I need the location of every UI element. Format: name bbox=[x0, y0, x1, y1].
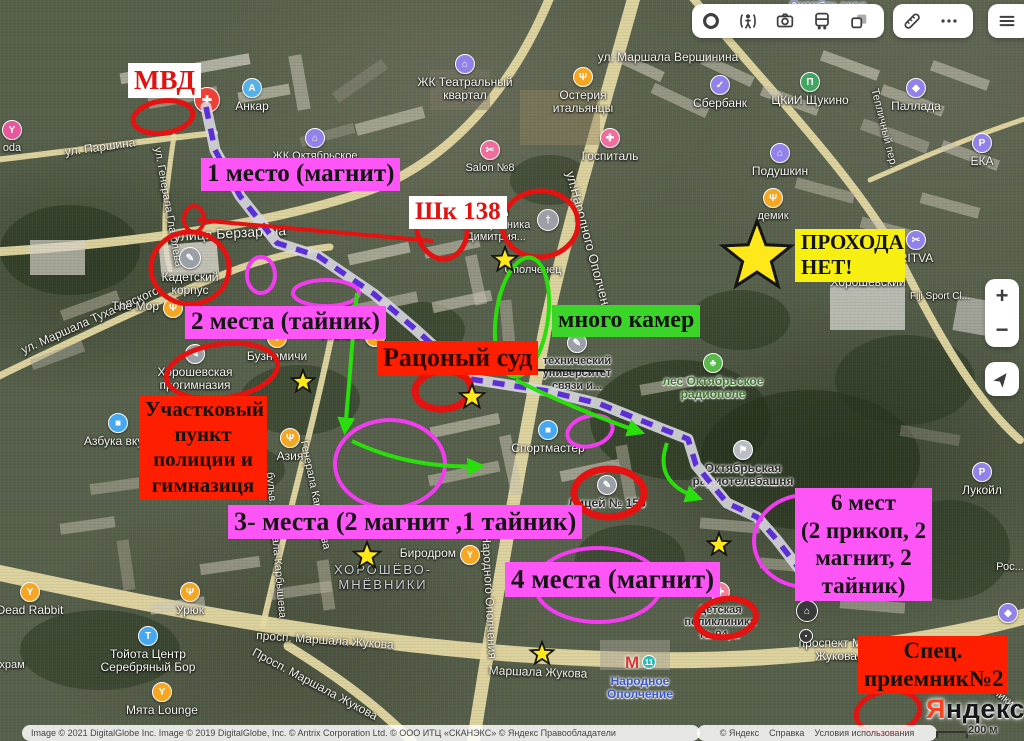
poi-label-кадетский-корпус: Кадетскийкорпус bbox=[120, 271, 260, 298]
poi-icon-лицей-156[interactable]: ✎ bbox=[597, 475, 617, 495]
metro-station-icon[interactable]: М bbox=[625, 653, 639, 673]
street-label: бульв. Генерала Карбышева bbox=[264, 472, 289, 619]
poi-label-oda: oda bbox=[0, 142, 82, 154]
poi-icon-демик[interactable]: Ψ bbox=[763, 188, 783, 208]
poi-label-рос: Рос... bbox=[935, 561, 1024, 573]
menu-icon bbox=[996, 10, 1018, 32]
toolbar-group-3 bbox=[988, 4, 1024, 38]
poi-label-лес-октябрьское-радиополе: лес Октябрьскоерадиополе bbox=[643, 375, 783, 402]
panoramas-icon bbox=[737, 10, 759, 32]
poi-label-dead-rabbit: Dead Rabbit bbox=[0, 604, 100, 617]
street-label: ул. Генерала Глаголева bbox=[152, 146, 185, 267]
poi-icon-salon-8[interactable]: ✂ bbox=[480, 140, 500, 160]
metro-line-badge: 11 bbox=[642, 655, 656, 669]
yandex-logo-rest: ндекс bbox=[946, 694, 1024, 724]
yandex-logo-ya: Я bbox=[926, 694, 946, 724]
poi-label-подушкин: Подушкин bbox=[710, 165, 850, 178]
street-label: просп. Маршала Жукова bbox=[256, 628, 394, 652]
geolocation-arrow-icon bbox=[992, 369, 1012, 389]
ruler-icon bbox=[901, 10, 923, 32]
poi-label-бузнамичи: Бузнамичи bbox=[207, 350, 347, 363]
attribution-bar: Image © 2021 DigitalGlobe Inc. Image © 2… bbox=[22, 725, 700, 741]
yandex-copyright-link[interactable]: © Яндекс bbox=[720, 728, 759, 738]
poi-label-урюк: Урюк bbox=[120, 604, 260, 617]
street-label: ул. Маршала Вершинина bbox=[598, 50, 739, 64]
annotation-banner-place3: 3- места (2 магнит ,1 тайник) bbox=[228, 505, 582, 539]
poi-icon-ека[interactable]: P bbox=[972, 133, 992, 153]
help-link[interactable]: Справка bbox=[769, 728, 804, 738]
poi-icon-азия[interactable]: Ψ bbox=[280, 428, 300, 448]
poi-icon-октябрьская-радиотелебашня[interactable]: ⚑ bbox=[733, 440, 753, 460]
poi-icon-the-мор[interactable]: Ψ bbox=[163, 298, 183, 318]
annotation-banner-shk138: Шк 138 bbox=[409, 196, 507, 229]
poi-icon-лес-октябрьское-радиополе[interactable]: ♣ bbox=[703, 353, 723, 373]
poi-icon-биродром[interactable]: Y bbox=[460, 545, 480, 565]
yandex-logo[interactable]: Яндекс bbox=[926, 694, 1024, 725]
poi-icon-жк-театральный-квартал[interactable]: ⌂ bbox=[455, 54, 475, 74]
poi-icon-жк-октябрьское[interactable]: ⌂ bbox=[305, 128, 325, 148]
annotation-banner-place1: 1 место (магнит) bbox=[201, 158, 400, 191]
poi-label-хорошевская-прогимназия: Хорошевскаяпрогимназия bbox=[125, 366, 265, 393]
poi-label-мята-lounge: Мята Lounge bbox=[92, 704, 232, 717]
street-label: Просп. Маршала Жукова bbox=[250, 645, 380, 723]
annotation-banner-mvd: МВД bbox=[128, 63, 201, 98]
menu-button[interactable] bbox=[988, 4, 1024, 38]
annotation-banner-place2: 2 места (тайник) bbox=[185, 306, 386, 339]
annotation-banner-police: Участковый пункт полиции и гимназиця bbox=[139, 396, 267, 500]
photos-icon bbox=[774, 10, 796, 32]
more-button[interactable] bbox=[930, 4, 967, 38]
zoom-control: + − bbox=[985, 279, 1019, 347]
transport-icon bbox=[811, 10, 833, 32]
transport-button[interactable] bbox=[803, 4, 840, 38]
attribution-text: Image © 2021 DigitalGlobe Inc. Image © 2… bbox=[31, 728, 616, 738]
poi-icon-ritva[interactable]: ✂ bbox=[906, 230, 926, 250]
poi-icon-poi[interactable]: ◆ bbox=[998, 603, 1018, 623]
star-marker-annotation bbox=[723, 221, 791, 286]
poi-label-детская-поликлиника-94: Детскаяполиклиника№ 94,... bbox=[650, 604, 790, 641]
zoom-in-button[interactable]: + bbox=[985, 279, 1019, 313]
poi-icon-poi[interactable]: ▪ bbox=[799, 629, 813, 643]
poi-icon-урюк[interactable]: Ψ bbox=[180, 582, 200, 602]
poi-icon-oda[interactable]: Y bbox=[2, 120, 22, 140]
poi-icon-кадетский-корпус[interactable]: ✎ bbox=[179, 247, 201, 269]
scale-bar bbox=[936, 731, 968, 738]
poi-label-октябрьская-радиотелебашня: Октябрьскаярадиотелебашня bbox=[673, 462, 813, 489]
poi-label-спортмастер: Спортмастер bbox=[478, 442, 618, 455]
geolocation-button[interactable] bbox=[985, 362, 1019, 396]
metro-station-label: НародноеОполчение bbox=[580, 675, 700, 702]
toolbar-group-1 bbox=[692, 4, 884, 38]
photos-button[interactable] bbox=[766, 4, 803, 38]
poi-label-госпиталь: Госпиталь bbox=[540, 150, 680, 163]
poi-label-salon-8: Salon №8 bbox=[420, 162, 560, 174]
poi-label-остерия-итальянцы: Остерияитальянцы bbox=[513, 89, 653, 116]
star-marker-annotation bbox=[531, 642, 554, 664]
map-canvas[interactable]: улица Берзаринаул. Паршинаул. Маршала Ту… bbox=[0, 0, 1024, 741]
terms-link[interactable]: Условия использования bbox=[814, 728, 914, 738]
poi-icon-азбука-вку[interactable]: ■ bbox=[108, 413, 128, 433]
poi-icon-остерия-итальянцы[interactable]: Ψ bbox=[573, 67, 593, 87]
poi-icon-тойота-центр-серебряный-бор[interactable]: T bbox=[138, 626, 158, 646]
ruler-button[interactable] bbox=[893, 4, 930, 38]
layers-icon bbox=[848, 10, 870, 32]
annotation-banner-court: Рацоный суд bbox=[377, 341, 538, 375]
annotation-banner-special: Спец. приемник№2 bbox=[858, 636, 1008, 694]
poi-icon-dead-rabbit[interactable]: Y bbox=[20, 582, 40, 602]
street-label: улица Берзарина bbox=[174, 222, 287, 244]
toolbar-group-2 bbox=[893, 4, 973, 38]
poi-label-демик: демик bbox=[703, 210, 843, 222]
annotation-banner-cameras: много камер bbox=[552, 305, 700, 337]
scale-label: 200 м bbox=[968, 724, 998, 736]
poi-label-ополченец: Ополченец bbox=[458, 264, 608, 276]
poi-icon-poi[interactable]: ⌂ bbox=[796, 600, 818, 622]
street-label: ул.Народного Ополчения bbox=[563, 169, 617, 320]
poi-label-the-мор: The Мор bbox=[19, 300, 159, 313]
poi-icon-сбербанк[interactable]: ✓ bbox=[710, 75, 730, 95]
poi-label-ека: ЕКА bbox=[912, 155, 1024, 168]
star-marker-annotation bbox=[460, 384, 485, 408]
traffic-button[interactable] bbox=[692, 4, 729, 38]
poi-icon-спортмастер[interactable]: ■ bbox=[538, 420, 558, 440]
poi-label-хорош-во-мн-вники: ХОРОШЁВО-МНЁВНИКИ bbox=[308, 563, 458, 592]
poi-label-тойота-центр-серебряный-бор: Тойота ЦентрСеребряный Бор bbox=[78, 648, 218, 675]
annotation-banner-place6: 6 мест (2 прикоп, 2 магнит, 2 тайник) bbox=[795, 488, 932, 601]
green-arrow-annotation bbox=[352, 441, 480, 466]
poi-icon-мята-lounge[interactable]: Y bbox=[152, 682, 172, 702]
annotation-banner-place4: 4 места (магнит) bbox=[505, 562, 720, 597]
poi-icon-цкии-щукино[interactable]: П bbox=[800, 72, 820, 92]
attribution-links-bar: © Яндекс Справка Условия использования bbox=[697, 725, 937, 741]
poi-label-храм: храм bbox=[0, 659, 87, 671]
annotation-banner-nopass: ПРОХОДА НЕТ! bbox=[795, 229, 905, 282]
layers-button[interactable] bbox=[840, 4, 877, 38]
zoom-out-button[interactable]: − bbox=[985, 313, 1019, 347]
more-icon bbox=[938, 10, 960, 32]
poi-label-паллада: Паллада bbox=[846, 100, 986, 113]
traffic-icon bbox=[700, 10, 722, 32]
magenta-circle-annotation bbox=[293, 280, 359, 306]
poi-icon-анкар[interactable]: A bbox=[242, 78, 262, 98]
panoramas-button[interactable] bbox=[729, 4, 766, 38]
poi-icon-лукойл[interactable]: P bbox=[972, 462, 992, 482]
poi-icon-госпиталь[interactable]: ✚ bbox=[600, 128, 620, 148]
star-marker-annotation bbox=[292, 370, 315, 392]
star-marker-annotation bbox=[708, 533, 731, 555]
poi-label-биродром: Биродром bbox=[316, 547, 456, 560]
street-label: Маршала Жукова bbox=[488, 663, 587, 680]
poi-icon-паллада[interactable]: ◆ bbox=[906, 78, 926, 98]
magenta-circle-annotation bbox=[335, 420, 445, 508]
poi-icon-хорошевская-прогимназия[interactable]: ✎ bbox=[185, 344, 205, 364]
poi-icon-подушкин[interactable]: ⌂ bbox=[770, 143, 790, 163]
